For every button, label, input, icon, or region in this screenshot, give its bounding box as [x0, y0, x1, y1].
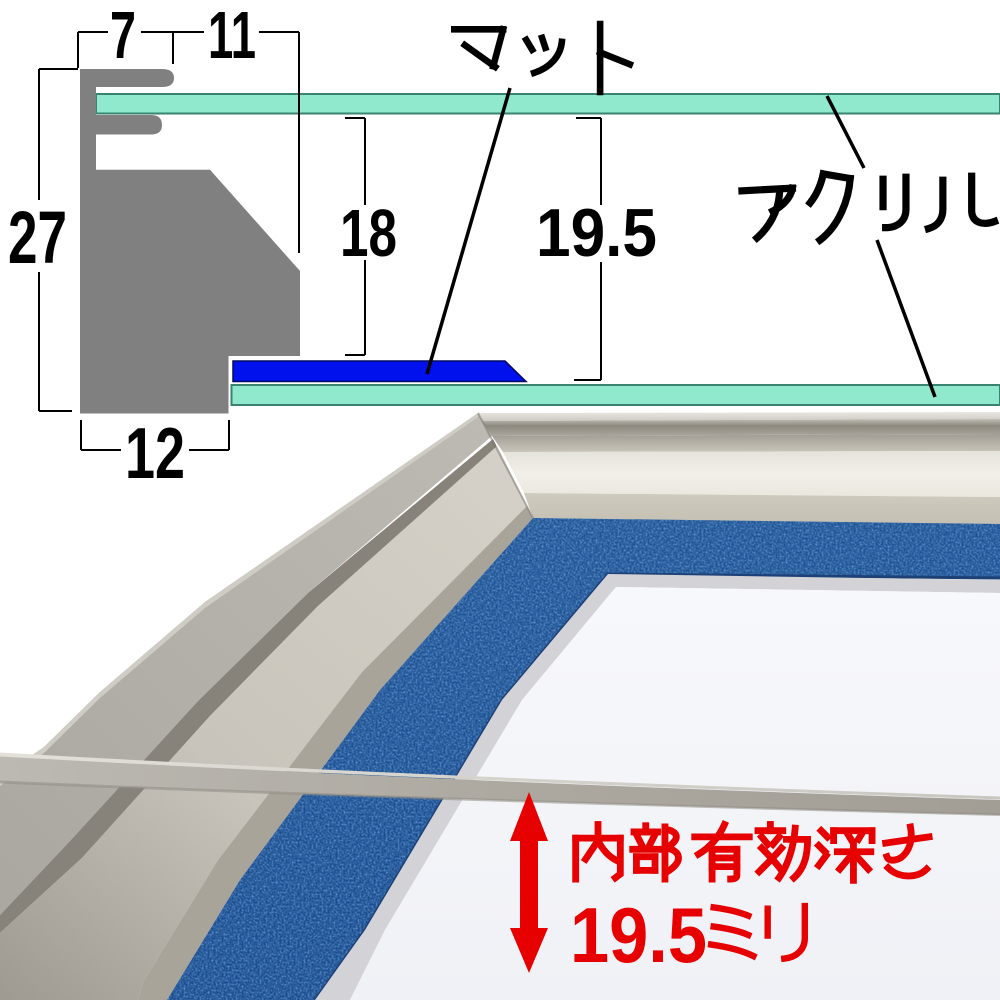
svg-text:18: 18	[340, 196, 397, 271]
svg-text:19.5: 19.5	[536, 195, 657, 271]
svg-text:27: 27	[8, 196, 67, 279]
svg-text:7: 7	[110, 0, 136, 73]
svg-text:19.5: 19.5	[570, 891, 707, 979]
svg-text:11: 11	[208, 0, 256, 73]
svg-text:12: 12	[125, 414, 185, 494]
